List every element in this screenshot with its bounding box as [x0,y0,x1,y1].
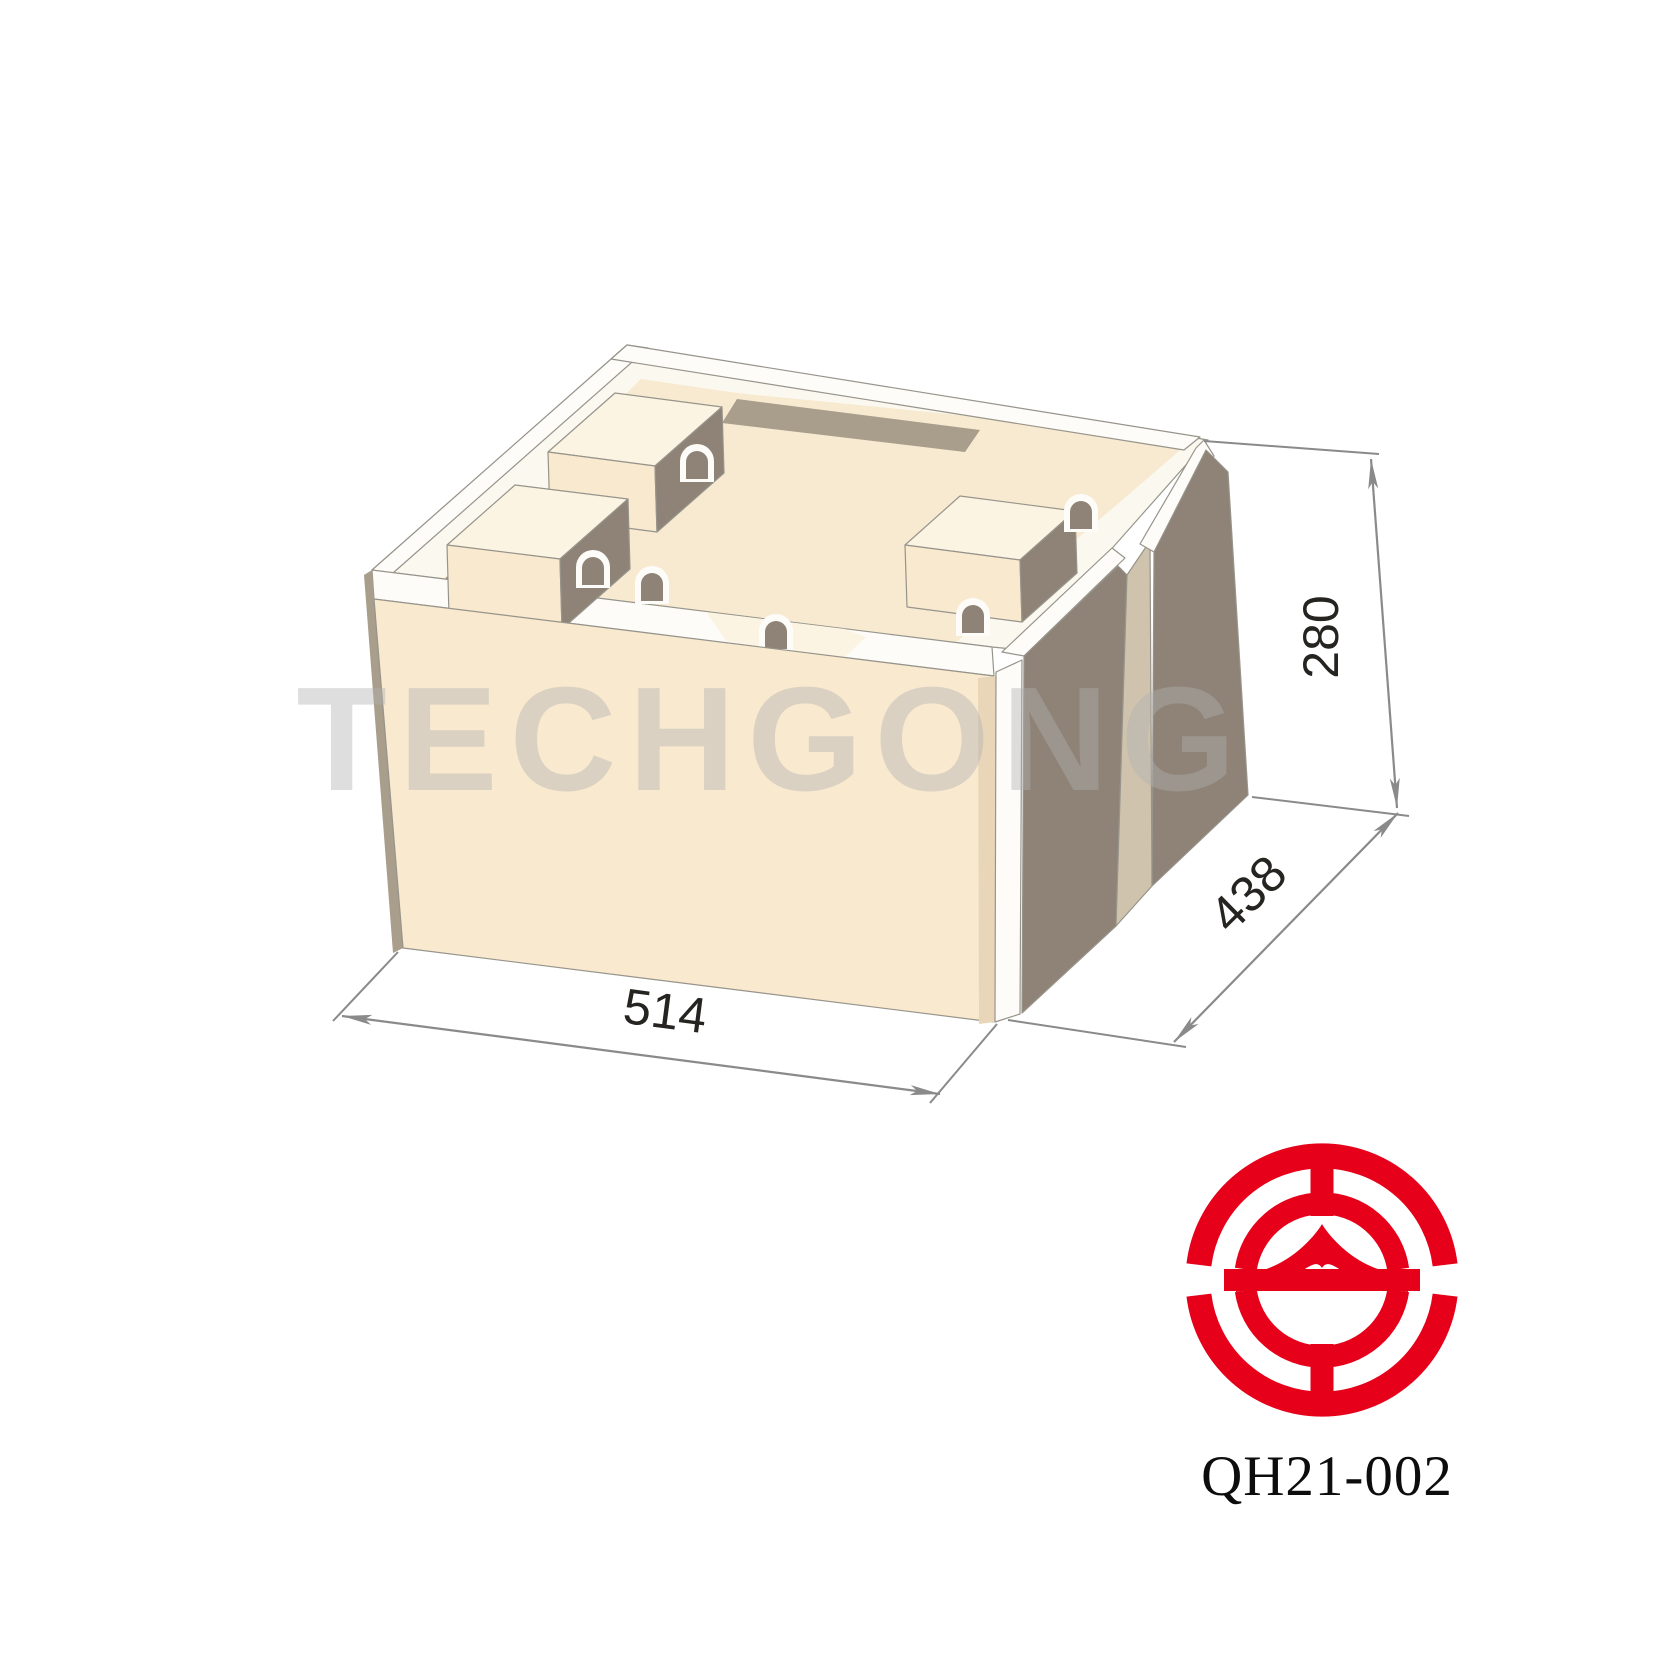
dimension-label-height: 280 [1293,595,1349,678]
logo-bottom-stem [1311,1344,1334,1416]
technical-drawing: TECHGONG 514 438 280 [0,0,1667,1667]
half-hole-notch [956,598,990,636]
extension-line [333,952,398,1021]
dimension-height: 280 [1293,459,1397,808]
extension-line [1252,797,1409,816]
half-hole-notch [680,444,714,482]
extension-line [1008,1020,1186,1047]
dimension-line [1371,459,1397,808]
techgong-logo [1199,1144,1445,1416]
dimension-label-depth: 438 [1199,845,1298,943]
extension-line [1204,441,1379,454]
half-hole-notch [576,550,610,588]
half-hole-notch [759,614,793,652]
dimension-label-length: 514 [620,978,710,1044]
logo-top-stem [1311,1144,1334,1216]
watermark-text: TECHGONG [296,657,1247,822]
half-hole-notch [1064,494,1098,532]
dimension-line [1174,813,1398,1042]
branding: QH21-002 [1199,1144,1453,1508]
half-hole-notch [635,566,669,604]
extension-line [930,1024,997,1103]
product-code-text: QH21-002 [1201,1445,1453,1508]
product-drawing-canvas: TECHGONG 514 438 280 [0,0,1667,1667]
dimension-depth: 438 [1174,813,1398,1042]
